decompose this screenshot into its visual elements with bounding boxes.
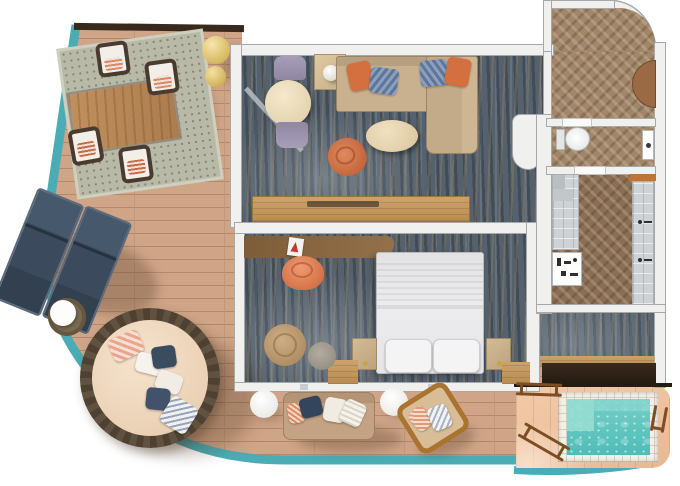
bed-pillow xyxy=(385,339,432,373)
throw-pillow xyxy=(426,402,454,432)
window-mullion xyxy=(300,384,308,390)
bath-block-left-wall xyxy=(536,114,552,314)
bed-pillow xyxy=(433,339,480,373)
wc-door xyxy=(562,118,592,127)
indoor-dining-chair xyxy=(274,56,306,80)
round-side-table xyxy=(250,390,278,418)
pouf-chair xyxy=(264,324,306,366)
outdoor-sofa xyxy=(283,392,375,440)
whirlpool xyxy=(558,392,658,462)
outdoor-dining-chair xyxy=(118,144,155,184)
round-daybed xyxy=(80,308,220,448)
pool-step xyxy=(567,399,594,431)
sphere-lamp xyxy=(202,36,230,64)
outdoor-dining-chair xyxy=(67,125,105,166)
floor-plan xyxy=(0,0,680,486)
indoor-dining-chair xyxy=(276,122,308,148)
king-bed xyxy=(376,252,484,374)
indoor-dining-table xyxy=(265,80,311,126)
sauna-bench-strip xyxy=(630,174,656,181)
walk-in-shower xyxy=(552,174,579,250)
side-stool xyxy=(308,342,336,370)
pool-ladder xyxy=(516,382,562,397)
window-bench xyxy=(502,362,530,384)
pool-water xyxy=(567,399,650,455)
toilet-bowl xyxy=(565,127,590,151)
dressing-counter xyxy=(542,363,656,385)
hall-top-wall xyxy=(543,0,615,9)
desk-chair xyxy=(282,256,324,290)
toilet xyxy=(556,129,565,150)
throw-pillow xyxy=(444,56,472,88)
throw-pillow xyxy=(368,66,399,96)
coffee-table xyxy=(366,120,418,152)
rattan-side-table xyxy=(48,298,86,336)
outdoor-dining-chair xyxy=(95,40,131,78)
living-left-wall xyxy=(230,44,242,228)
second-shower xyxy=(632,181,654,305)
living-top-wall xyxy=(238,44,554,56)
vanity xyxy=(552,252,582,286)
outdoor-dining-chair xyxy=(144,58,180,96)
throw-pillow xyxy=(298,395,324,420)
living-hall-wall xyxy=(543,46,552,120)
living-bedroom-wall xyxy=(234,222,546,234)
wc-washbasin xyxy=(642,130,654,160)
pool-step xyxy=(594,399,650,411)
desk xyxy=(244,236,394,258)
media-console xyxy=(252,196,470,222)
bath-dressing-wall xyxy=(536,304,666,313)
hall-left-wall xyxy=(543,0,552,52)
sphere-lamp xyxy=(205,66,226,87)
throw-pillow xyxy=(151,344,178,369)
book xyxy=(287,237,304,257)
dressing-floor xyxy=(540,311,654,359)
